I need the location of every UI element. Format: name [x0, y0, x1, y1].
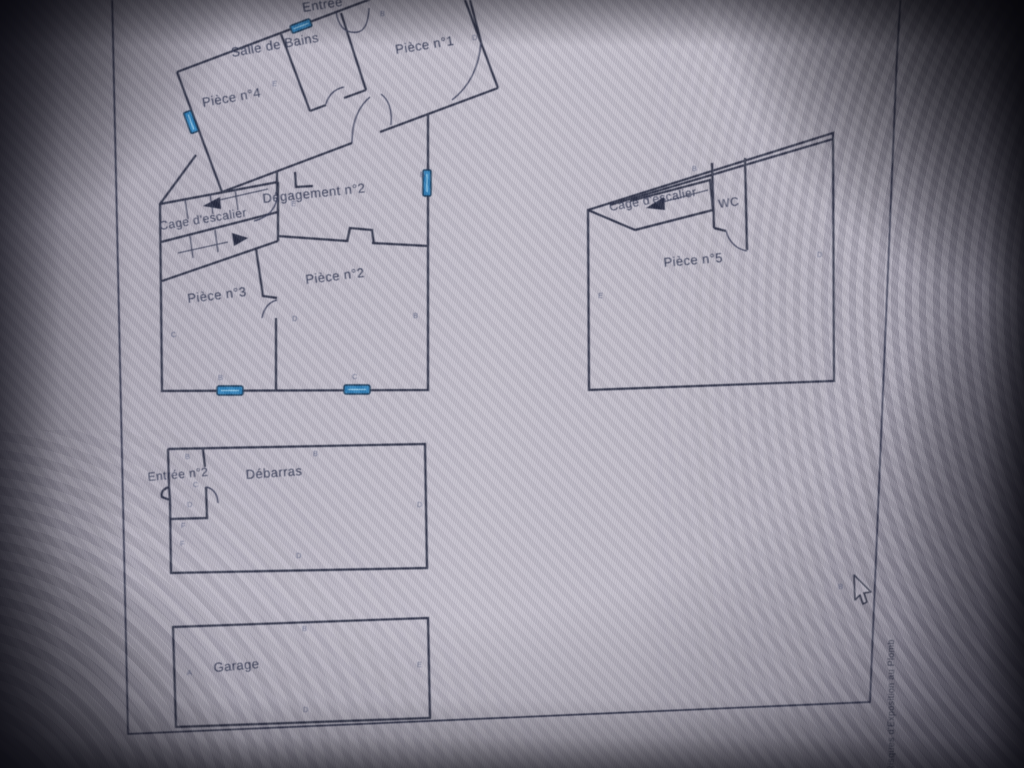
point-label: F — [181, 521, 186, 530]
main-house-lower — [160, 113, 431, 395]
point-label: E — [272, 79, 277, 88]
room-label-piece-2: Pièce n°2 — [305, 265, 366, 287]
point-label: D — [303, 705, 309, 714]
room-label-piece-4: Pièce n°4 — [201, 85, 262, 110]
room-label-garage: Garage — [213, 656, 260, 675]
point-label: B — [313, 449, 318, 458]
point-label: E — [291, 199, 296, 208]
point-label: B — [413, 311, 418, 320]
point-label: A — [187, 668, 192, 677]
point-label: D — [187, 500, 193, 509]
room-labels: Entrée Salle de Bains Pièce n°1 Pièce n°… — [147, 0, 740, 675]
point-label: D — [417, 500, 423, 509]
point-label: B — [185, 452, 190, 461]
point-label: D — [817, 250, 823, 259]
point-label: B — [380, 9, 385, 18]
point-label: F — [180, 539, 185, 548]
point-label: C — [352, 372, 358, 381]
point-label: E — [417, 660, 422, 669]
point-label: B — [692, 164, 697, 173]
point-label: C — [193, 480, 199, 489]
room-label-piece-5: Pièce n°5 — [663, 250, 723, 270]
room-label-debarras: Débarras — [245, 463, 303, 482]
window-symbol — [344, 385, 370, 394]
point-label: D — [292, 314, 298, 323]
point-label: C — [171, 330, 177, 339]
point-label: B — [420, 170, 425, 179]
room-label-wc: WC — [717, 194, 740, 211]
mouse-cursor-icon — [854, 575, 871, 604]
garage-building — [173, 618, 430, 727]
point-label: D — [472, 33, 478, 42]
screen-photo: Entrée Salle de Bains Pièce n°1 Pièce n°… — [0, 0, 1024, 768]
point-label: B — [218, 373, 223, 382]
point-label: E — [598, 291, 603, 300]
floor-plan: Entrée Salle de Bains Pièce n°1 Pièce n°… — [0, 0, 1024, 768]
room-label-entree-2: Entrée n°2 — [147, 465, 209, 484]
side-title-vertical: des Risques d'Exposition au Plomb — [886, 639, 896, 768]
room-label-piece-3: Pièce n°3 — [187, 284, 248, 306]
point-label: B — [838, 582, 843, 591]
point-label: D — [296, 551, 302, 560]
point-labels: B D E E B B D C B C B B C D D F F D B A … — [171, 9, 843, 714]
window-symbol — [217, 386, 243, 395]
point-label: B — [302, 624, 307, 633]
room-label-piece-1: Pièce n°1 — [394, 33, 455, 57]
room-label-cage-escalier: Cage d'escalier — [158, 205, 247, 233]
